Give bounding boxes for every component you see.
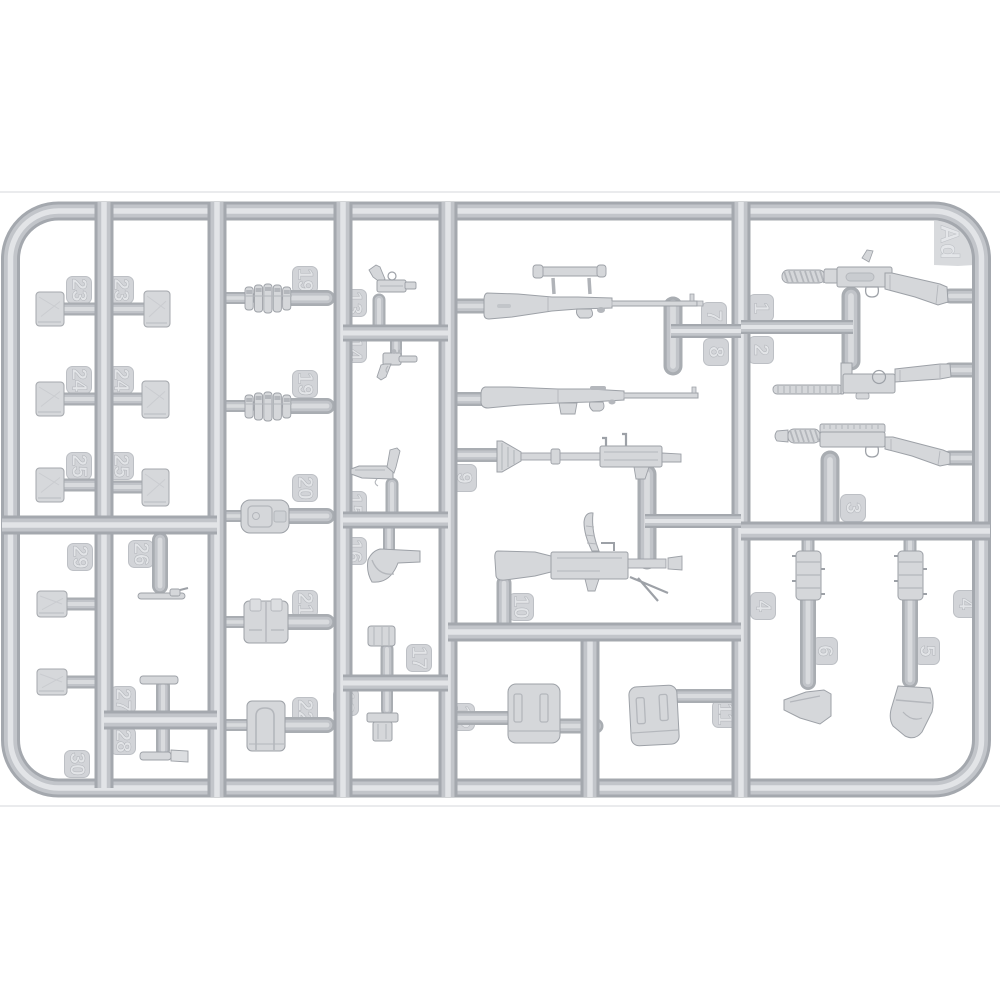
svg-text:19: 19 (294, 372, 317, 395)
svg-text:17: 17 (408, 646, 431, 669)
svg-text:4: 4 (752, 600, 775, 612)
svg-text:3: 3 (842, 502, 865, 514)
svg-text:24: 24 (68, 368, 91, 392)
svg-text:29: 29 (69, 545, 92, 568)
svg-text:2: 2 (750, 344, 773, 356)
svg-text:1: 1 (750, 302, 773, 314)
svg-text:5: 5 (916, 645, 939, 657)
svg-text:21: 21 (294, 592, 317, 616)
svg-text:27: 27 (112, 688, 135, 711)
svg-text:30: 30 (66, 752, 89, 775)
svg-text:23: 23 (68, 278, 91, 301)
svg-text:10: 10 (510, 595, 533, 618)
svg-text:19: 19 (294, 268, 317, 291)
svg-text:8: 8 (705, 346, 728, 358)
svg-text:25: 25 (68, 454, 91, 478)
svg-text:20: 20 (294, 476, 317, 499)
svg-text:28: 28 (112, 729, 135, 753)
svg-text:7: 7 (703, 310, 726, 322)
svg-text:26: 26 (130, 542, 153, 565)
svg-text:6: 6 (814, 645, 837, 657)
